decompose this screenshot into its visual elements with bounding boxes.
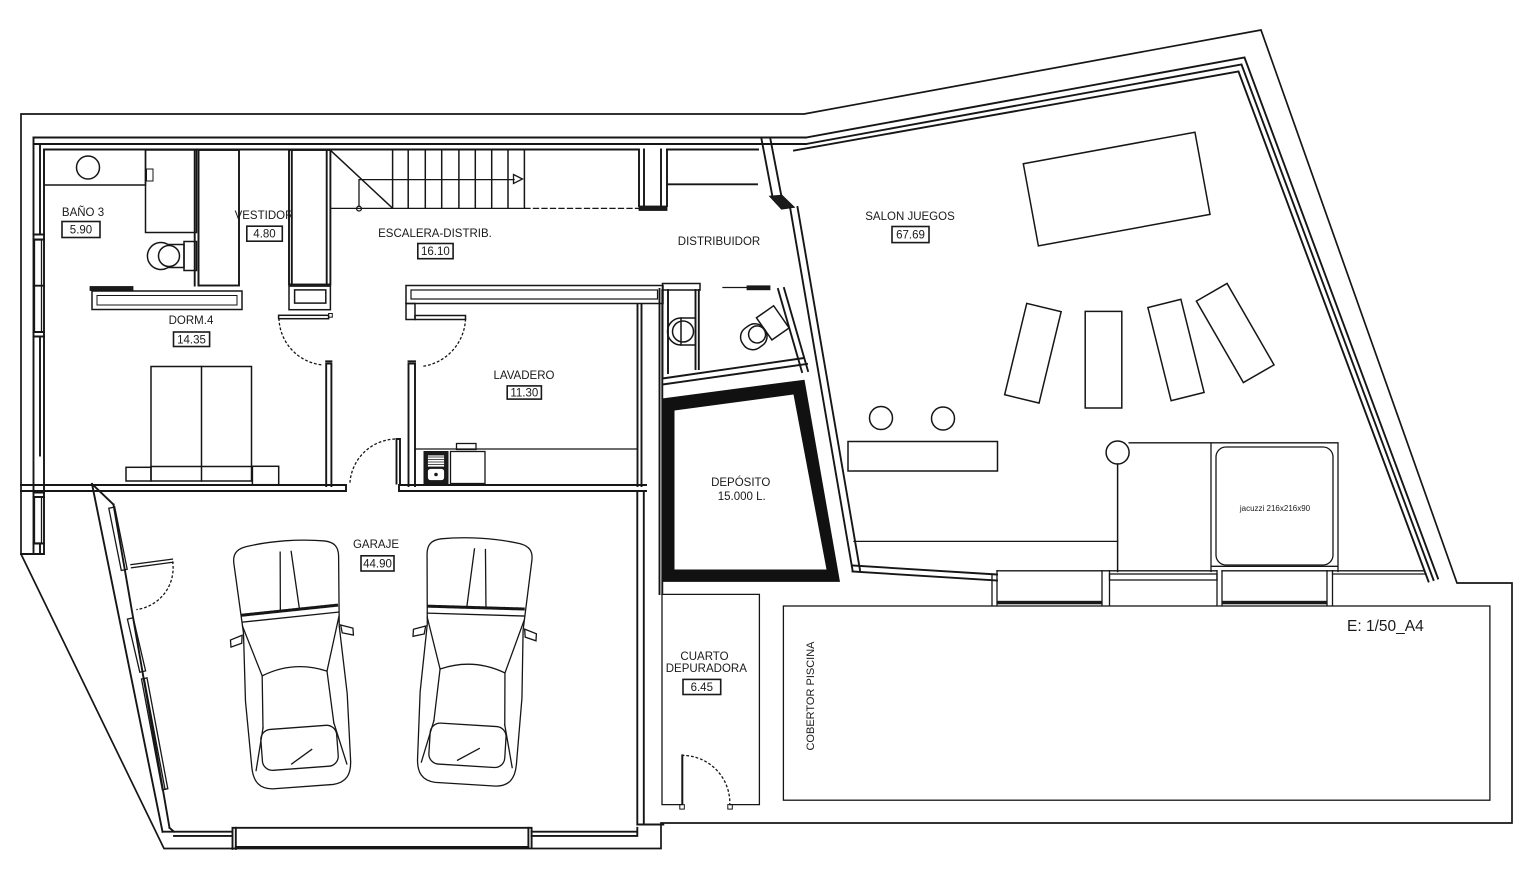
svg-text:SALON JUEGOS: SALON JUEGOS — [865, 211, 955, 223]
svg-text:ESCALERA-DISTRIB.: ESCALERA-DISTRIB. — [378, 228, 492, 240]
svg-text:VESTIDOR: VESTIDOR — [235, 210, 294, 222]
svg-text:67.69: 67.69 — [896, 230, 925, 242]
svg-text:GARAJE: GARAJE — [353, 539, 399, 551]
svg-text:15.000 L.: 15.000 L. — [718, 491, 766, 503]
svg-text:COBERTOR PISCINA: COBERTOR PISCINA — [805, 641, 817, 751]
svg-text:DEPÓSITO: DEPÓSITO — [711, 476, 770, 489]
svg-text:6.45: 6.45 — [691, 682, 713, 694]
svg-text:LAVADERO: LAVADERO — [494, 370, 555, 382]
svg-text:BAÑO 3: BAÑO 3 — [62, 206, 104, 219]
svg-text:4.80: 4.80 — [253, 229, 275, 241]
svg-text:11.30: 11.30 — [510, 387, 538, 399]
svg-text:16.10: 16.10 — [421, 246, 450, 258]
svg-text:jacuzzi 216x216x90: jacuzzi 216x216x90 — [1239, 504, 1311, 513]
svg-text:44.90: 44.90 — [363, 559, 392, 571]
svg-text:DORM.4: DORM.4 — [169, 315, 214, 327]
svg-text:DISTRIBUIDOR: DISTRIBUIDOR — [678, 236, 760, 248]
svg-text:5.90: 5.90 — [70, 225, 92, 237]
svg-text:14.35: 14.35 — [177, 334, 206, 346]
svg-text:E: 1/50_A4: E: 1/50_A4 — [1347, 618, 1424, 635]
svg-text:DEPURADORA: DEPURADORA — [666, 663, 747, 675]
svg-text:CUARTO: CUARTO — [680, 651, 728, 663]
